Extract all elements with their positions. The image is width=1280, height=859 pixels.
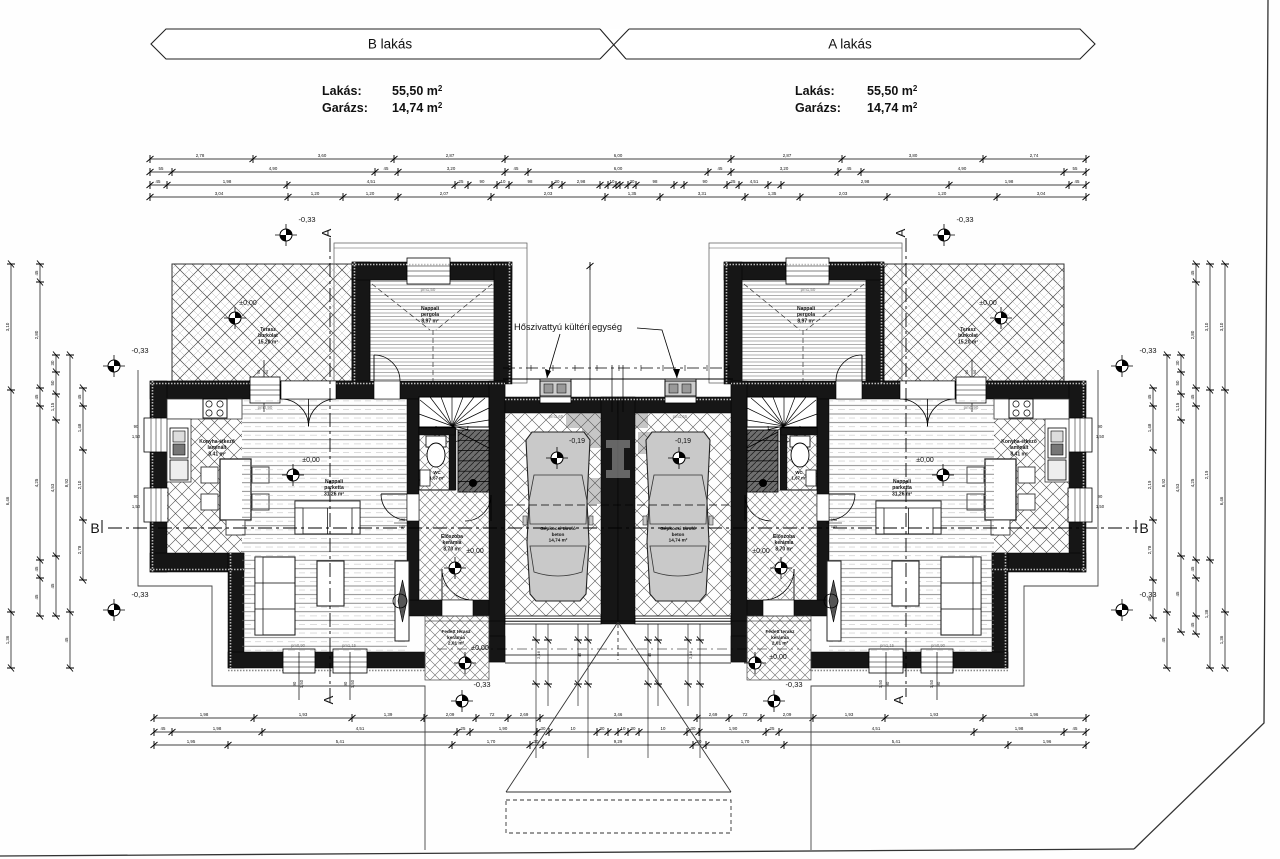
svg-text:4,51: 4,51	[750, 179, 759, 184]
svg-text:45: 45	[1190, 566, 1195, 571]
svg-text:1,98: 1,98	[223, 179, 232, 184]
svg-text:beton: beton	[552, 532, 565, 537]
svg-text:50: 50	[1175, 380, 1180, 385]
svg-text:3,60: 3,60	[318, 153, 327, 158]
svg-text:10: 10	[661, 726, 666, 731]
svg-text:Előszoba: Előszoba	[441, 534, 463, 540]
svg-text:45: 45	[50, 583, 55, 588]
svg-text:14,74 m2: 14,74 m2	[867, 101, 918, 115]
svg-text:10: 10	[501, 179, 506, 184]
svg-text:1,96: 1,96	[1043, 739, 1052, 744]
svg-text:3,31: 3,31	[698, 191, 707, 196]
svg-text:2,78: 2,78	[77, 545, 82, 554]
svg-text:4,51: 4,51	[872, 726, 881, 731]
svg-text:pergola: pergola	[797, 312, 815, 318]
svg-text:31,26 m²: 31,26 m²	[324, 491, 344, 497]
svg-text:Előszoba: Előszoba	[773, 534, 795, 540]
svg-text:kerámia: kerámia	[447, 635, 465, 640]
svg-text:1,35: 1,35	[768, 191, 777, 196]
svg-text:15,20 m²: 15,20 m²	[958, 339, 978, 345]
svg-text:pm1,50: pm1,50	[801, 287, 816, 292]
svg-text:90: 90	[1098, 494, 1103, 499]
svg-text:45: 45	[1075, 179, 1080, 184]
svg-text:9,29: 9,29	[614, 739, 623, 744]
svg-text:1,35: 1,35	[628, 191, 637, 196]
svg-text:90: 90	[703, 179, 708, 184]
svg-text:Nappali: Nappali	[797, 306, 816, 312]
svg-text:25: 25	[459, 179, 464, 184]
svg-text:4,51: 4,51	[356, 726, 365, 731]
svg-text:4,51: 4,51	[367, 179, 376, 184]
svg-text:90: 90	[972, 369, 977, 374]
svg-text:WC: WC	[795, 470, 803, 475]
svg-text:2,69: 2,69	[520, 712, 529, 717]
svg-text:Konyha-étkező: Konyha-étkező	[1001, 439, 1037, 445]
svg-text:2,87: 2,87	[446, 153, 455, 158]
svg-text:31,26 m²: 31,26 m²	[892, 491, 912, 497]
svg-text:-0,33: -0,33	[1139, 346, 1156, 355]
svg-text:-0,33: -0,33	[131, 590, 148, 599]
svg-text:A: A	[893, 228, 908, 237]
svg-text:45: 45	[1073, 726, 1078, 731]
svg-text:98: 98	[528, 179, 533, 184]
svg-text:1,36: 1,36	[5, 635, 10, 644]
svg-text:1,96: 1,96	[1030, 712, 1039, 717]
svg-text:-0,33: -0,33	[298, 215, 315, 224]
svg-text:1,90: 1,90	[499, 726, 508, 731]
svg-text:burkolat: burkolat	[958, 333, 978, 339]
svg-text:-0,19: -0,19	[675, 438, 691, 445]
svg-text:4,25: 4,25	[1190, 478, 1195, 487]
svg-text:±0,00: ±0,00	[752, 548, 770, 555]
svg-text:3,10: 3,10	[1204, 322, 1209, 331]
svg-text:5,41: 5,41	[336, 739, 345, 744]
svg-text:1,93: 1,93	[930, 712, 939, 717]
svg-text:3,04: 3,04	[1037, 191, 1046, 196]
svg-text:158: 158	[831, 518, 837, 522]
svg-text:kerámia: kerámia	[443, 540, 462, 546]
svg-text:2,80: 2,80	[34, 330, 39, 339]
svg-text:Terasz: Terasz	[960, 327, 976, 333]
svg-text:beton: beton	[672, 532, 685, 537]
svg-text:1,15: 1,15	[1175, 402, 1180, 411]
svg-text:Nappali: Nappali	[421, 306, 440, 312]
svg-text:45: 45	[156, 179, 161, 184]
svg-text:45: 45	[64, 637, 69, 642]
svg-text:45: 45	[718, 166, 723, 171]
svg-text:25: 25	[731, 179, 736, 184]
svg-text:±0,00: ±0,00	[471, 645, 489, 652]
svg-text:90: 90	[964, 369, 969, 374]
svg-text:1,98: 1,98	[200, 712, 209, 717]
svg-text:6,46: 6,46	[5, 496, 10, 505]
svg-text:2,09: 2,09	[446, 712, 455, 717]
svg-text:1,98: 1,98	[1005, 179, 1014, 184]
svg-text:45: 45	[847, 166, 852, 171]
svg-text:B lakás: B lakás	[368, 37, 413, 52]
svg-text:90: 90	[480, 179, 485, 184]
svg-text:45: 45	[384, 166, 389, 171]
svg-text:laminált: laminált	[1010, 445, 1029, 451]
svg-text:1,50: 1,50	[929, 679, 934, 688]
svg-text:1,67 m²: 1,67 m²	[791, 475, 807, 480]
svg-text:3,20: 3,20	[780, 166, 789, 171]
svg-text:50: 50	[50, 380, 55, 385]
svg-text:Terasz: Terasz	[260, 327, 276, 333]
svg-text:4,90: 4,90	[958, 166, 967, 171]
svg-text:30: 30	[541, 726, 546, 731]
svg-text:45: 45	[34, 594, 39, 599]
svg-text:Fedett terasz: Fedett terasz	[766, 629, 796, 634]
svg-text:8,41 m²: 8,41 m²	[208, 451, 226, 457]
svg-text:45: 45	[34, 566, 39, 571]
svg-text:-0,33: -0,33	[785, 680, 802, 689]
svg-text:72: 72	[490, 712, 495, 717]
svg-text:45: 45	[647, 652, 652, 657]
svg-text:8,92: 8,92	[64, 478, 69, 487]
svg-text:4,53: 4,53	[50, 483, 55, 492]
svg-text:8,70 m²: 8,70 m²	[775, 546, 793, 552]
svg-text:2,19: 2,19	[1147, 480, 1152, 489]
svg-text:8,97 m²: 8,97 m²	[797, 318, 815, 324]
svg-text:1,90: 1,90	[729, 726, 738, 731]
svg-text:A: A	[319, 228, 334, 237]
svg-text:45: 45	[1190, 394, 1195, 399]
svg-text:1,93: 1,93	[845, 712, 854, 717]
svg-text:45: 45	[77, 394, 82, 399]
svg-text:90: 90	[343, 681, 348, 686]
svg-text:30: 30	[1175, 360, 1180, 365]
svg-text:2,78: 2,78	[1147, 545, 1152, 554]
svg-text:Garázs:: Garázs:	[322, 101, 368, 115]
svg-text:2,69: 2,69	[709, 712, 718, 717]
svg-text:±0,00: ±0,00	[239, 300, 257, 307]
svg-text:30: 30	[631, 726, 636, 731]
svg-text:1,20: 1,20	[311, 191, 320, 196]
svg-text:1,98: 1,98	[213, 726, 222, 731]
svg-text:±0,00: ±0,00	[302, 457, 320, 464]
svg-text:Fedett terasz: Fedett terasz	[442, 629, 472, 634]
svg-text:parketta: parketta	[892, 485, 912, 491]
svg-text:55,50 m2: 55,50 m2	[392, 84, 443, 98]
svg-text:1,50: 1,50	[350, 679, 355, 688]
svg-text:kerámia: kerámia	[775, 540, 794, 546]
svg-text:1,50: 1,50	[878, 679, 883, 688]
svg-text:Konyha-étkező: Konyha-étkező	[199, 439, 235, 445]
svg-text:-0,33: -0,33	[956, 215, 973, 224]
svg-text:45: 45	[161, 726, 166, 731]
svg-text:±0,00: ±0,00	[979, 300, 997, 307]
svg-text:Lakás:: Lakás:	[795, 84, 835, 98]
svg-text:1,50: 1,50	[1096, 434, 1105, 439]
svg-text:2,74: 2,74	[1030, 153, 1039, 158]
svg-text:3,10: 3,10	[1219, 322, 1224, 331]
svg-text:3,20: 3,20	[447, 166, 456, 171]
svg-text:1,70: 1,70	[741, 739, 750, 744]
svg-text:90: 90	[1098, 424, 1103, 429]
svg-text:3,46: 3,46	[614, 712, 623, 717]
svg-text:3,10: 3,10	[5, 322, 10, 331]
svg-text:6,00: 6,00	[614, 153, 623, 158]
svg-text:45: 45	[1190, 270, 1195, 275]
svg-text:1,50: 1,50	[132, 504, 141, 509]
svg-text:laminált: laminált	[208, 445, 227, 451]
svg-text:1,38: 1,38	[1204, 609, 1209, 618]
svg-text:Nappali: Nappali	[893, 479, 912, 485]
svg-text:8,97 m²: 8,97 m²	[421, 318, 439, 324]
svg-text:2,09: 2,09	[783, 712, 792, 717]
svg-text:30: 30	[555, 179, 560, 184]
svg-text:2,01 m²: 2,01 m²	[772, 641, 789, 646]
svg-text:Hőszivattyú kültéri egység: Hőszivattyú kültéri egység	[514, 322, 622, 332]
svg-text:A lakás: A lakás	[828, 37, 872, 52]
svg-text:45: 45	[1175, 591, 1180, 596]
svg-text:4,53: 4,53	[1175, 483, 1180, 492]
svg-text:1,67 m²: 1,67 m²	[429, 475, 445, 480]
svg-text:Nappali: Nappali	[325, 479, 344, 485]
svg-text:4,25: 4,25	[34, 478, 39, 487]
svg-text:30: 30	[50, 360, 55, 365]
svg-text:B: B	[1139, 520, 1148, 536]
svg-text:1,48: 1,48	[77, 423, 82, 432]
svg-text:1,50: 1,50	[1096, 504, 1105, 509]
svg-text:45: 45	[34, 270, 39, 275]
svg-text:1,93: 1,93	[299, 712, 308, 717]
svg-text:2,98: 2,98	[577, 179, 586, 184]
svg-text:10: 10	[571, 726, 576, 731]
svg-text:90: 90	[256, 369, 261, 374]
svg-text:A: A	[891, 695, 906, 704]
svg-text:1,95: 1,95	[187, 739, 196, 744]
svg-text:90: 90	[936, 681, 941, 686]
svg-text:14,74 m2: 14,74 m2	[392, 101, 443, 115]
svg-text:3,04: 3,04	[215, 191, 224, 196]
svg-text:8,41 m²: 8,41 m²	[1010, 451, 1028, 457]
svg-text:25: 25	[770, 726, 775, 731]
svg-text:Gépkocsi tároló: Gépkocsi tároló	[540, 526, 576, 531]
svg-text:1,39: 1,39	[384, 712, 393, 717]
svg-text:2,07: 2,07	[440, 191, 449, 196]
svg-text:1,20: 1,20	[938, 191, 947, 196]
svg-text:2,87: 2,87	[783, 153, 792, 158]
svg-text:30: 30	[691, 726, 696, 731]
svg-text:-0,33: -0,33	[473, 680, 490, 689]
svg-text:55: 55	[159, 166, 164, 171]
svg-text:Lakás:: Lakás:	[322, 84, 362, 98]
svg-text:90: 90	[264, 369, 269, 374]
svg-text:2,03: 2,03	[544, 191, 553, 196]
svg-text:25: 25	[461, 726, 466, 731]
svg-text:2,01 m²: 2,01 m²	[448, 641, 465, 646]
svg-text:45: 45	[1147, 394, 1152, 399]
svg-text:A: A	[321, 695, 336, 704]
svg-text:45: 45	[1161, 637, 1166, 642]
svg-text:45: 45	[1190, 622, 1195, 627]
svg-text:8,70 m²: 8,70 m²	[443, 546, 461, 552]
svg-text:15,20 m²: 15,20 m²	[258, 339, 278, 345]
svg-text:45: 45	[34, 394, 39, 399]
svg-text:45: 45	[514, 166, 519, 171]
svg-text:kerámia: kerámia	[771, 635, 789, 640]
svg-text:parketta: parketta	[324, 485, 344, 491]
svg-text:1,70: 1,70	[487, 739, 496, 744]
svg-text:B: B	[90, 520, 99, 536]
svg-text:4,90: 4,90	[269, 166, 278, 171]
svg-text:55,50 m2: 55,50 m2	[867, 84, 918, 98]
svg-text:Gépkocsi tároló: Gépkocsi tároló	[660, 526, 696, 531]
svg-text:pm1,50: pm1,50	[421, 287, 436, 292]
svg-text:14,74 m²: 14,74 m²	[549, 538, 568, 543]
svg-text:WC: WC	[433, 470, 441, 475]
svg-text:2,98: 2,98	[861, 179, 870, 184]
svg-text:1,50: 1,50	[132, 434, 141, 439]
svg-text:72: 72	[743, 712, 748, 717]
svg-text:98: 98	[653, 179, 658, 184]
svg-text:±0,00: ±0,00	[466, 548, 484, 555]
svg-text:6,46: 6,46	[1219, 496, 1224, 505]
svg-text:pergola: pergola	[421, 312, 439, 318]
svg-text:90: 90	[292, 681, 297, 686]
svg-text:2,16: 2,16	[688, 650, 693, 659]
svg-text:55: 55	[1073, 166, 1078, 171]
svg-text:1,15: 1,15	[50, 402, 55, 411]
svg-text:14,74 m²: 14,74 m²	[669, 538, 688, 543]
svg-text:1,20: 1,20	[366, 191, 375, 196]
svg-text:burkolat: burkolat	[258, 333, 278, 339]
svg-text:±0,00: ±0,00	[916, 457, 934, 464]
svg-text:Garázs:: Garázs:	[795, 101, 841, 115]
svg-text:-0,33: -0,33	[131, 346, 148, 355]
svg-text:45: 45	[577, 652, 582, 657]
svg-text:2,16: 2,16	[536, 650, 541, 659]
svg-text:2,03: 2,03	[839, 191, 848, 196]
svg-text:8,92: 8,92	[1161, 478, 1166, 487]
svg-text:1,36: 1,36	[1219, 635, 1224, 644]
svg-text:158: 158	[399, 518, 405, 522]
svg-text:1,98: 1,98	[1015, 726, 1024, 731]
svg-text:2,80: 2,80	[1190, 330, 1195, 339]
svg-text:10: 10	[621, 726, 626, 731]
svg-text:30: 30	[600, 726, 605, 731]
svg-text:1,48: 1,48	[1147, 423, 1152, 432]
svg-text:6,00: 6,00	[614, 166, 623, 171]
svg-text:1,50: 1,50	[299, 679, 304, 688]
svg-text:10: 10	[610, 179, 615, 184]
svg-text:3,80: 3,80	[909, 153, 918, 158]
svg-text:2,19: 2,19	[1204, 470, 1209, 479]
svg-text:-0,33: -0,33	[1139, 590, 1156, 599]
svg-text:2,10: 2,10	[77, 480, 82, 489]
svg-text:5,41: 5,41	[892, 739, 901, 744]
svg-text:30: 30	[630, 179, 635, 184]
svg-text:2,78: 2,78	[196, 153, 205, 158]
svg-text:-0,19: -0,19	[569, 438, 585, 445]
svg-text:90: 90	[885, 681, 890, 686]
svg-text:±0,00: ±0,00	[769, 654, 787, 661]
